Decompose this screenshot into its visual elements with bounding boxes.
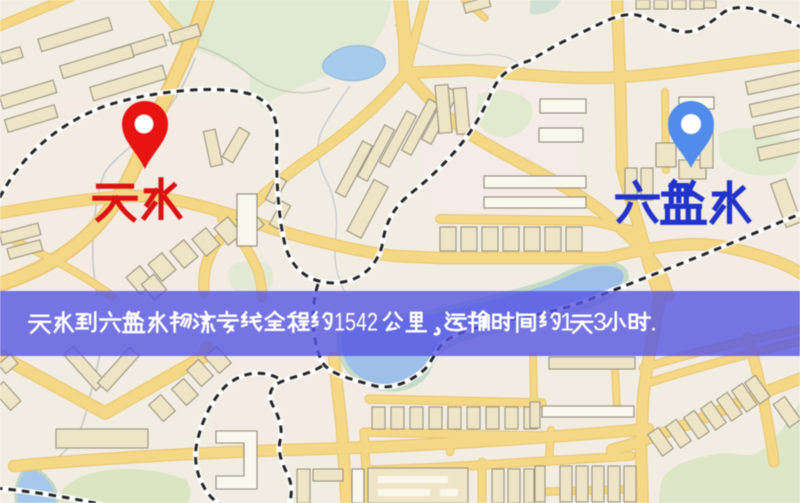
svg-text:1542: 1542 — [334, 309, 378, 337]
svg-text:.: . — [650, 309, 657, 337]
svg-text:3: 3 — [593, 309, 607, 337]
svg-text:1: 1 — [560, 309, 574, 337]
